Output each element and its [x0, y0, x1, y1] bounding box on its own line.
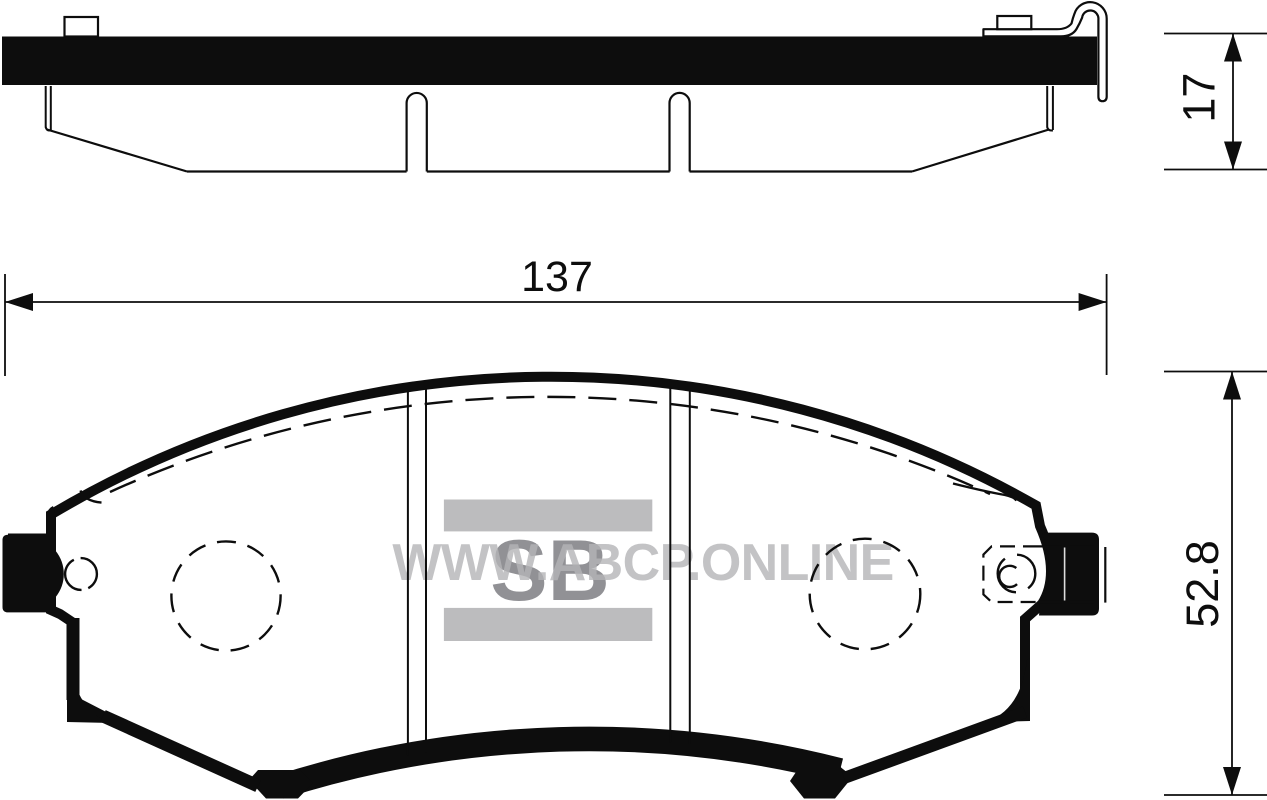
- svg-text:WWW.ABCP.ONLINE: WWW.ABCP.ONLINE: [392, 534, 893, 592]
- svg-text:137: 137: [521, 253, 593, 301]
- svg-text:52.8: 52.8: [1177, 540, 1228, 628]
- svg-text:17: 17: [1174, 73, 1225, 123]
